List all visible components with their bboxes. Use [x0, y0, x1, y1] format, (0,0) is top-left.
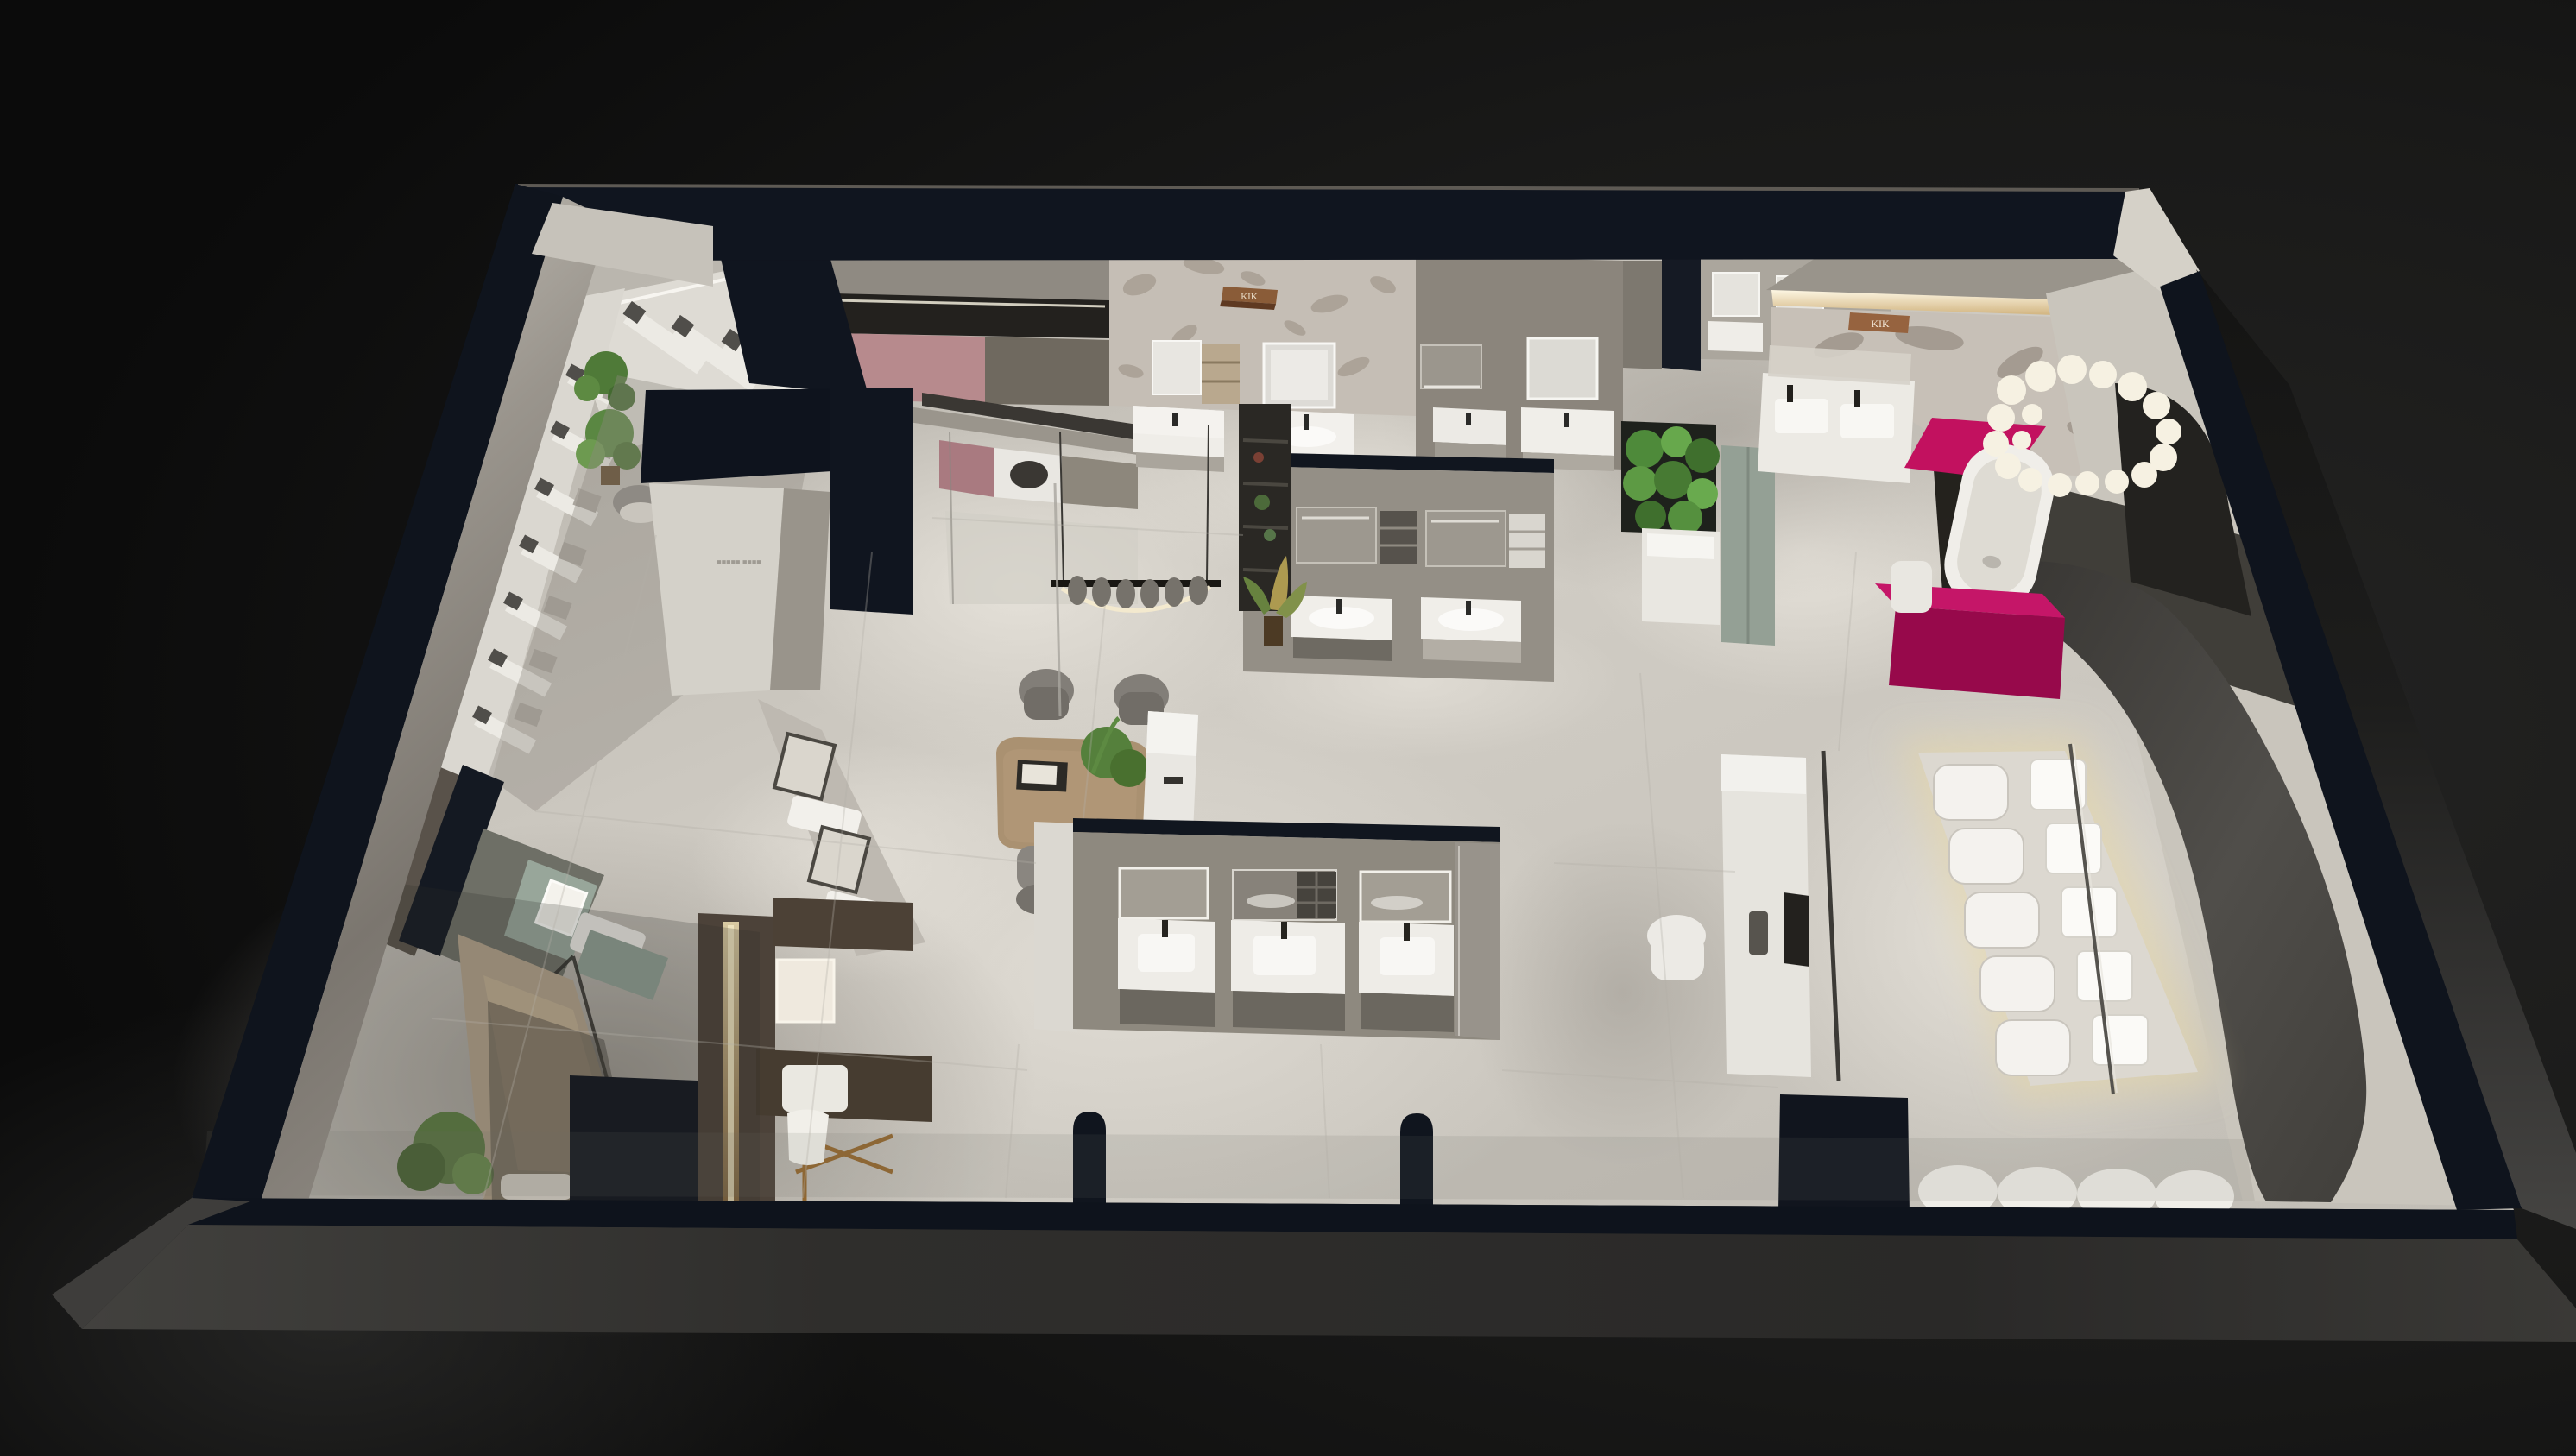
svg-text:■■■■■ ■■■■: ■■■■■ ■■■■: [717, 558, 761, 566]
svg-text:KIK: KIK: [1241, 292, 1258, 302]
svg-text:KIK: KIK: [1871, 318, 1890, 330]
